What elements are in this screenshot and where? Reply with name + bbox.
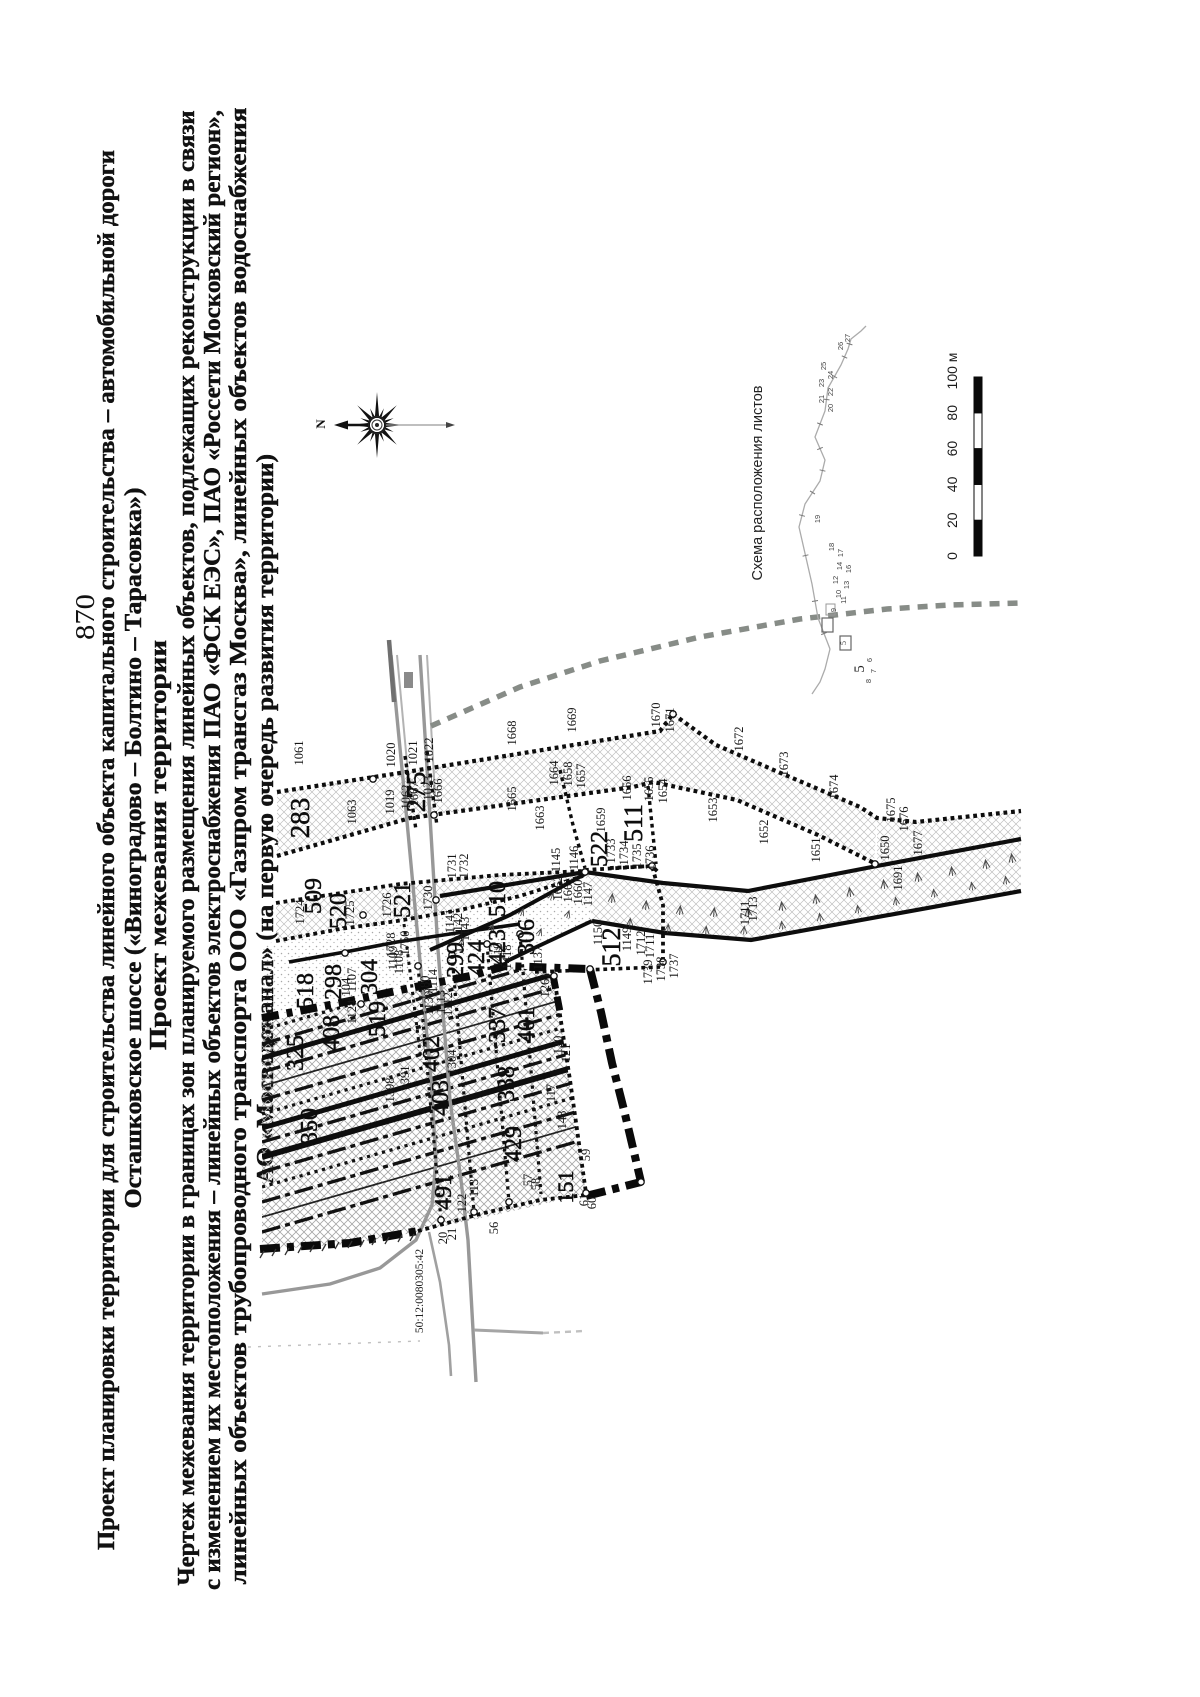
svg-text:350: 350 [297,1108,323,1144]
svg-text:8: 8 [864,679,873,683]
svg-text:Осташковское шоссе («Виноградо: Осташковское шоссе («Виноградово – Болти… [121,487,147,1208]
svg-text:1261: 1261 [538,973,552,998]
svg-text:1711: 1711 [643,934,657,959]
svg-text:1653: 1653 [706,798,720,823]
svg-text:11: 11 [839,596,848,604]
svg-text:1675: 1675 [884,798,898,823]
svg-text:402: 402 [419,1036,445,1072]
svg-text:1655: 1655 [642,777,656,802]
svg-text:0: 0 [944,552,960,560]
svg-text:1735: 1735 [630,844,644,869]
svg-text:1145: 1145 [549,848,563,873]
svg-text:117: 117 [544,1084,558,1102]
svg-text:27: 27 [843,334,852,342]
svg-text:100 м: 100 м [944,353,960,390]
svg-text:1107: 1107 [345,968,359,993]
svg-text:20: 20 [826,404,835,412]
svg-text:7: 7 [869,669,878,673]
svg-text:линейных объектов трубопроводн: линейных объектов трубопроводного трансп… [226,107,252,1584]
svg-text:1659: 1659 [594,808,608,833]
svg-text:1137: 1137 [531,946,545,971]
svg-text:5: 5 [839,641,848,645]
svg-text:1656: 1656 [620,776,634,801]
svg-text:1668: 1668 [505,721,519,746]
svg-text:23: 23 [817,379,826,387]
svg-text:1652: 1652 [757,820,771,845]
svg-text:408: 408 [319,1015,345,1051]
svg-text:1114: 1114 [426,968,440,993]
svg-text:60: 60 [944,441,960,457]
svg-text:121: 121 [559,1044,573,1063]
svg-text:1674: 1674 [827,774,841,800]
svg-text:1671: 1671 [663,708,677,733]
svg-text:1112: 1112 [441,992,455,1016]
svg-text:429: 429 [501,1126,527,1162]
svg-text:1020: 1020 [384,743,398,768]
svg-text:80: 80 [944,405,960,421]
svg-text:113: 113 [467,1179,481,1197]
svg-text:1108: 1108 [392,950,406,975]
svg-text:1677: 1677 [911,831,925,856]
svg-text:403: 403 [428,1080,454,1116]
svg-text:1391: 1391 [398,1066,412,1091]
svg-text:1657: 1657 [574,764,588,789]
svg-text:148: 148 [555,1111,569,1130]
svg-text:40: 40 [944,476,960,492]
svg-text:Чертеж межевания территории в: Чертеж межевания территории в границах з… [174,110,200,1585]
svg-text:5: 5 [852,665,868,673]
svg-text:1664: 1664 [547,760,561,786]
svg-text:9: 9 [829,608,838,612]
svg-text:1144: 1144 [453,928,467,953]
svg-text:1063: 1063 [345,800,359,825]
svg-text:1666: 1666 [431,779,445,804]
svg-text:19: 19 [813,515,822,523]
svg-text:1737: 1737 [667,954,681,979]
svg-text:Схема расположения листов: Схема расположения листов [750,385,766,580]
svg-text:1730: 1730 [421,886,435,911]
svg-text:25: 25 [819,362,828,370]
svg-text:1726: 1726 [380,893,394,918]
svg-text:1651: 1651 [809,838,823,863]
svg-text:13: 13 [842,581,851,589]
svg-text:24: 24 [826,371,835,379]
svg-text:519: 519 [365,1001,391,1037]
svg-text:1724: 1724 [293,899,307,925]
svg-text:518: 518 [293,973,319,1009]
svg-text:1732: 1732 [457,854,471,879]
svg-text:1739: 1739 [641,960,655,985]
svg-text:58: 58 [529,1178,543,1191]
svg-text:1667: 1667 [407,782,421,807]
svg-text:511: 511 [619,804,648,842]
svg-text:1725: 1725 [343,901,357,926]
svg-text:1398: 1398 [383,1078,397,1103]
svg-text:1658: 1658 [561,762,575,787]
svg-text:1149: 1149 [620,927,634,952]
svg-text:14: 14 [835,562,844,570]
svg-text:1673: 1673 [777,752,791,777]
svg-text:20: 20 [944,512,960,528]
svg-text:401: 401 [514,1007,540,1043]
svg-text:22: 22 [826,388,835,396]
svg-text:с изменением их местоположения: с изменением их местоположения – линейны… [200,110,226,1590]
svg-text:1734: 1734 [617,840,631,866]
svg-text:N: N [313,419,328,429]
svg-text:Проект планировки территории д: Проект планировки территории для строите… [94,150,120,1550]
svg-text:325: 325 [283,1035,309,1071]
svg-text:338: 338 [494,1066,520,1102]
svg-text:1736: 1736 [643,846,657,871]
svg-text:60: 60 [585,1197,599,1210]
svg-text:59: 59 [579,1149,593,1162]
svg-text:510: 510 [485,881,511,917]
svg-text:21: 21 [445,1228,459,1241]
svg-text:491: 491 [431,1174,457,1210]
svg-text:283: 283 [285,798,315,839]
svg-text:1738: 1738 [654,957,668,982]
svg-text:Проект межевания территории: Проект межевания территории [146,640,172,1050]
svg-text:1418: 1418 [500,945,514,970]
svg-text:1061: 1061 [292,741,306,766]
svg-text:1665: 1665 [505,787,519,812]
svg-text:18: 18 [827,543,836,551]
svg-text:1733: 1733 [604,839,618,864]
svg-text:56: 56 [487,1222,501,1235]
svg-text:1691: 1691 [891,866,905,891]
svg-text:1672: 1672 [732,727,746,752]
svg-text:1146: 1146 [567,846,581,871]
svg-text:1670: 1670 [649,703,663,728]
svg-text:6: 6 [865,658,874,662]
svg-text:17: 17 [836,549,845,557]
svg-text:337: 337 [485,1007,511,1043]
svg-text:50:12:0080305:42: 50:12:0080305:42 [414,1249,426,1334]
svg-text:16: 16 [844,565,853,573]
svg-text:1019: 1019 [383,790,397,815]
svg-text:1150: 1150 [591,921,605,946]
svg-text:1650: 1650 [878,836,892,861]
svg-text:1304: 1304 [445,1049,459,1075]
svg-text:1147: 1147 [581,882,595,907]
svg-text:304: 304 [357,959,383,995]
svg-text:1654: 1654 [656,778,670,804]
svg-text:1663: 1663 [533,806,547,831]
svg-text:151: 151 [553,1171,578,1204]
svg-text:1676: 1676 [897,807,911,832]
svg-text:12: 12 [831,576,840,584]
svg-text:1669: 1669 [565,708,579,733]
svg-text:21: 21 [817,395,826,403]
svg-text:1022: 1022 [422,738,436,763]
svg-text:1711: 1711 [738,901,752,926]
svg-text:1021: 1021 [406,741,420,766]
